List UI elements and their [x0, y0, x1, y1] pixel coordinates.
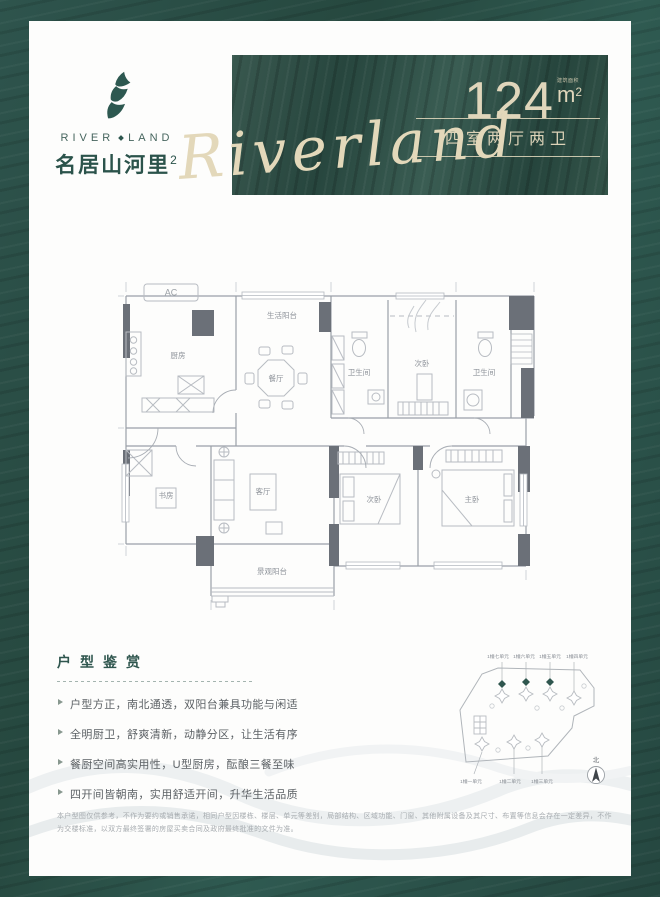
- label-bedroom-bottom: 次卧: [367, 494, 382, 504]
- building-footprints: [474, 687, 581, 751]
- arrow-bullet-icon: [58, 759, 63, 765]
- features-title: 户型鉴赏: [57, 652, 337, 672]
- brand-name-cn: 名居山河里2: [42, 149, 192, 179]
- label-view-balcony: 景观阳台: [257, 566, 287, 576]
- features-section: 户型鉴赏 户型方正，南北通透，双阳台兼具功能与闲适 全明厨卫，舒爽清新，动静分区…: [57, 652, 337, 802]
- poster-page: RIVER LAND 名居山河里2 124 建筑面积 m2 四室两厅两卫 Riv…: [0, 0, 660, 897]
- feature-text: 户型方正，南北通透，双阳台兼具功能与闲适: [70, 696, 298, 712]
- unit-label-1: 1幢一单元: [460, 778, 482, 785]
- label-bedroom-top: 次卧: [415, 358, 430, 368]
- siteplan-map: 1幢七单元 1幢六单元 1幢五单元 1幢四单元 1幢一单元 1幢二单元 1幢三单…: [452, 642, 614, 794]
- area-label: 建筑面积: [557, 77, 579, 84]
- feature-item: 餐厨空间高实用性，U型厨房，酝酿三餐至味: [57, 756, 337, 772]
- disclaimer-text: 本户型图仅供参考，不作为要约或销售承诺，相同户型因楼栋、楼层、单元等差别，局部结…: [57, 811, 615, 836]
- leaf-logo-icon: [94, 70, 140, 120]
- label-bath-b: 卫生间: [473, 367, 496, 377]
- unit-label-6: 1幢六单元: [513, 653, 535, 660]
- dashed-divider: [57, 681, 255, 682]
- feature-text: 餐厨空间高实用性，U型厨房，酝酿三餐至味: [70, 756, 295, 772]
- feature-item: 户型方正，南北通透，双阳台兼具功能与闲适: [57, 696, 337, 712]
- ac-label: AC: [165, 288, 178, 298]
- brand-en-left: RIVER: [61, 132, 115, 144]
- arrow-bullet-icon: [58, 699, 63, 705]
- unit-label-5: 1幢五单元: [539, 653, 561, 660]
- area-unit: m2: [557, 84, 582, 106]
- label-dining: 餐厅: [269, 374, 284, 383]
- arrow-bullet-icon: [58, 789, 63, 795]
- feature-item: 四开间皆朝南，实用舒适开间，升华生活品质: [57, 786, 337, 802]
- leader-lines: [474, 662, 574, 774]
- feature-item: 全明厨卫，舒爽清新，动静分区，让生活有序: [57, 726, 337, 742]
- label-bath-a: 卫生间: [348, 367, 371, 377]
- label-living: 客厅: [256, 486, 271, 496]
- floorplan-drawing: AC 生活阳台 厨房 餐厅 卫生间 次卧 卫生间 书房 客厅 次卧 主卧 景观阳…: [116, 278, 544, 628]
- label-study: 书房: [159, 490, 174, 500]
- unit-label-2: 1幢二单元: [499, 778, 521, 785]
- compass-north-label: 北: [593, 756, 600, 764]
- label-service-balcony: 生活阳台: [267, 310, 297, 320]
- brand-name-en: RIVER LAND: [42, 132, 192, 144]
- unit-label-3: 1幢三单元: [531, 778, 553, 785]
- compass: 北: [588, 756, 605, 784]
- unit-label-7: 1幢七单元: [487, 653, 509, 660]
- feature-text: 四开间皆朝南，实用舒适开间，升华生活品质: [70, 786, 298, 802]
- label-master: 主卧: [465, 494, 480, 504]
- unit-label-4: 1幢四单元: [566, 653, 588, 660]
- brand-logo: RIVER LAND 名居山河里2: [42, 70, 192, 179]
- label-kitchen: 厨房: [171, 350, 186, 360]
- brand-en-right: LAND: [128, 132, 173, 144]
- diamond-dot-icon: [118, 135, 124, 141]
- feature-text: 全明厨卫，舒爽清新，动静分区，让生活有序: [70, 726, 298, 742]
- arrow-bullet-icon: [58, 729, 63, 735]
- stair-core: [511, 334, 532, 364]
- windows: [122, 292, 527, 569]
- brand-cn-text: 名居山河里: [55, 154, 170, 177]
